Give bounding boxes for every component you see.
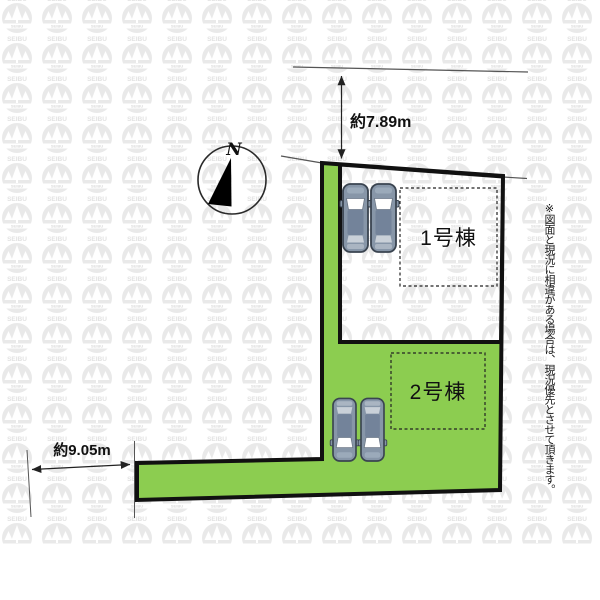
dimension-arrow-bottom-left [32,465,130,470]
road-edge-line-top [293,67,528,72]
dimension-label-bottom-left: 約9.05m [45,439,119,460]
dimension-label-top: 約7.89m [350,108,411,132]
building-2-label: 2号棟 [391,353,485,429]
road-edge-line-right [503,177,527,179]
disclaimer-note: ※図面と現況に相違がある場合は、現況優先とさせて頂きます。 [541,202,557,512]
car-3 [330,398,359,461]
compass-north-label: N [223,140,245,160]
car-2 [368,184,399,252]
building-1-label: 1号棟 [400,188,497,286]
extension-line-left [27,450,31,517]
car-1 [340,184,371,252]
compass-needle-icon [208,158,232,207]
car-4 [358,398,387,461]
site-plan-canvas: SEIBU SEIBU [0,0,600,600]
road-edge-line-left [281,156,322,163]
plan-layer [0,0,600,600]
